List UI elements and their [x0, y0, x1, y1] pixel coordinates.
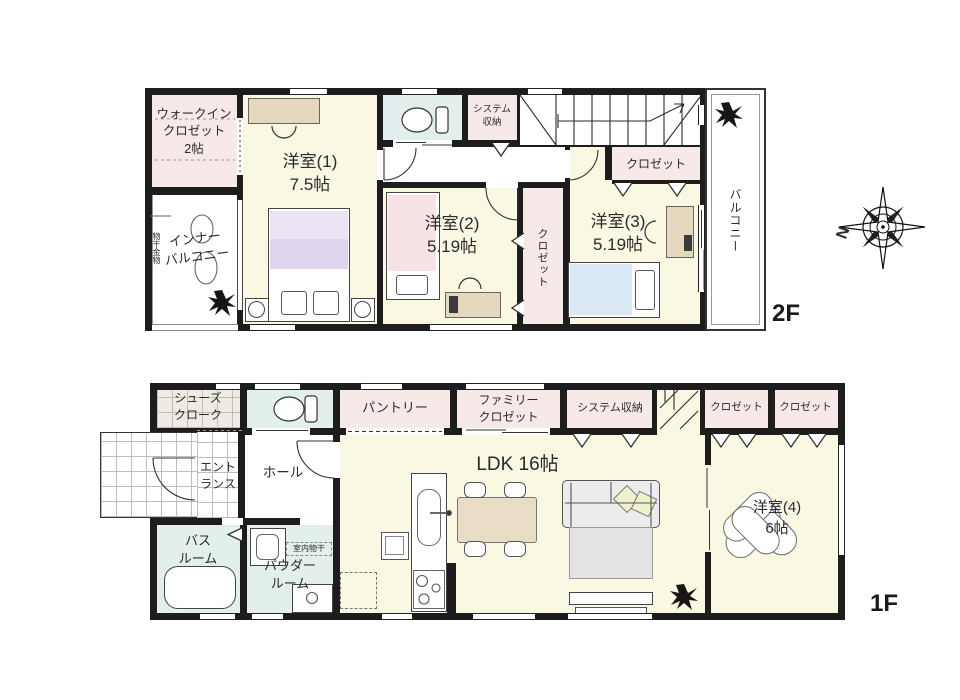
bed-blanket-top — [270, 211, 348, 239]
f1-toilet-slider-gap — [252, 428, 310, 435]
f1-closet-a — [705, 390, 768, 428]
dining-chair — [464, 482, 486, 498]
f1-entrance — [197, 432, 238, 518]
f2-system-storage-room — [468, 95, 517, 140]
window — [382, 613, 412, 620]
f2-corridor — [383, 147, 565, 182]
window — [290, 88, 327, 95]
f2-room3-door-gap — [563, 150, 570, 178]
refrigerator-space — [340, 572, 377, 609]
f1-stairs-area — [657, 390, 700, 435]
f2-closet-room3-box — [612, 147, 700, 180]
f2-room2-door-gap — [486, 182, 518, 188]
window — [528, 88, 562, 95]
f1-family-closet-slider — [462, 428, 550, 435]
window — [216, 383, 240, 390]
f2-room1-door-gap — [377, 150, 383, 180]
window — [698, 105, 705, 125]
tv-board — [569, 592, 653, 605]
f1-family-closet — [457, 390, 560, 428]
f1-hall — [245, 435, 333, 518]
f1-closet-b — [775, 390, 838, 428]
desk — [445, 292, 501, 318]
bed-double — [268, 208, 350, 322]
f2-inner-balcony-room — [152, 195, 237, 324]
f2-balcony-railing — [711, 94, 760, 325]
dining-chair — [504, 482, 526, 498]
f1-pantry — [340, 390, 450, 428]
f1-system-storage-room — [567, 390, 652, 428]
compass-icon — [839, 186, 925, 269]
floor-plan-canvas: ウォークイン クロゼット 2帖 インナー バルコニー 物干金物 洋室(1) 7.… — [0, 0, 960, 700]
dining-table — [457, 497, 537, 543]
window — [473, 613, 535, 620]
dining-chair — [504, 541, 526, 557]
bed-blanket — [570, 264, 632, 315]
bed-blanket — [388, 195, 436, 271]
window — [252, 613, 283, 620]
f2-inner-balcony-opening — [152, 324, 238, 331]
f2-closet3-left-wall — [605, 147, 612, 180]
f2-closet-vertical-room — [523, 188, 563, 324]
f1-pantry-opening — [346, 428, 444, 435]
window — [361, 383, 402, 390]
f2-toilet-slider-gap — [393, 140, 452, 147]
kitchen-sink — [417, 489, 441, 546]
f1-hall-ldk-door-gap — [333, 442, 340, 478]
floor-badge-2f: 2F — [772, 300, 800, 328]
side-table-round — [354, 301, 371, 318]
f1-porch — [100, 432, 197, 518]
dining-chair — [464, 541, 486, 557]
bed-blanket — [270, 239, 348, 269]
f2-wic-opening — [237, 118, 243, 175]
window — [838, 445, 845, 555]
side-table — [381, 532, 409, 560]
floor-badge-1f: 1F — [870, 590, 898, 618]
side-table — [245, 298, 269, 322]
bookshelf-icon — [449, 296, 458, 313]
bed-pillow — [281, 291, 307, 315]
window — [568, 613, 652, 620]
f1-powder-entry-gap — [300, 518, 333, 525]
bookshelf-icon — [684, 235, 692, 251]
f1-ldk-room4-slider — [705, 465, 711, 552]
bed-pillow — [396, 275, 428, 295]
kitchen-stove — [413, 570, 445, 609]
window — [430, 324, 512, 331]
f1-bath-door-gap — [222, 518, 243, 525]
f2-stairs-area — [520, 95, 700, 145]
window — [200, 613, 235, 620]
f1-entrance-hall-wall — [238, 448, 245, 525]
f1-toilet-room — [247, 390, 333, 428]
f2-closet-vert-left-wall — [517, 185, 523, 324]
compass-north-label: N — [830, 219, 858, 247]
side-table-inner — [385, 536, 404, 555]
desk — [248, 98, 320, 124]
side-table-round — [248, 301, 265, 318]
f1-room4 — [711, 435, 838, 613]
f2-balcony-door — [698, 205, 705, 292]
bed-pillow — [635, 270, 655, 310]
desk — [666, 206, 694, 258]
f2-walkin-closet-room — [152, 95, 237, 187]
bed-pillow — [313, 291, 339, 315]
f1-kitchen-wall-stub — [447, 563, 456, 613]
rug — [569, 527, 653, 579]
side-table — [351, 298, 375, 322]
washbasin — [250, 528, 286, 566]
washbasin-bowl — [256, 534, 279, 560]
f2-toilet-room — [383, 95, 462, 140]
f1-shoes-cloak — [157, 390, 240, 428]
window — [466, 383, 544, 390]
f2-closet3-bottom-wall — [612, 180, 700, 184]
bed-single — [386, 192, 440, 300]
bathtub — [164, 566, 236, 609]
window — [402, 88, 437, 95]
f2-room1-balcony-door — [237, 200, 243, 310]
bed-single — [568, 262, 660, 318]
washing-machine — [292, 584, 333, 613]
window — [250, 324, 295, 331]
window — [255, 383, 300, 390]
